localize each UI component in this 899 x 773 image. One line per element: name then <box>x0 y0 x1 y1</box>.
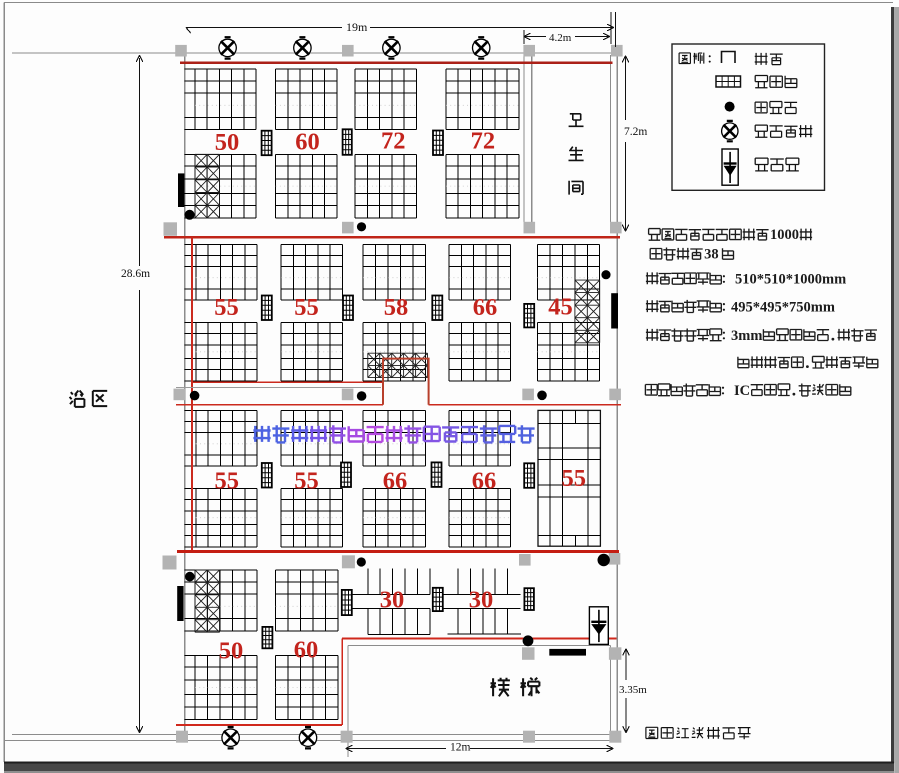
svg-text:30: 30 <box>380 586 405 613</box>
svg-text:58: 58 <box>384 294 409 321</box>
svg-text:4.2m: 4.2m <box>549 32 572 44</box>
svg-text:66: 66 <box>472 467 497 494</box>
svg-text:38: 38 <box>704 247 719 263</box>
svg-text:3mm: 3mm <box>731 328 762 344</box>
svg-text:19m: 19m <box>346 20 368 34</box>
svg-text:55: 55 <box>294 294 319 321</box>
svg-text:66: 66 <box>473 294 498 321</box>
svg-text:55: 55 <box>562 465 587 492</box>
svg-text:60: 60 <box>294 636 319 663</box>
svg-text:50: 50 <box>215 129 240 156</box>
svg-text:28.6m: 28.6m <box>121 268 150 280</box>
svg-text:45: 45 <box>548 293 573 320</box>
svg-text:IC: IC <box>734 383 750 399</box>
svg-text:72: 72 <box>381 128 406 155</box>
svg-text:55: 55 <box>214 294 239 321</box>
svg-text:72: 72 <box>471 128 496 155</box>
svg-text:30: 30 <box>469 586 494 613</box>
svg-text:7.2m: 7.2m <box>624 126 647 138</box>
svg-text:50: 50 <box>219 637 244 664</box>
svg-text:60: 60 <box>295 129 320 156</box>
svg-text:66: 66 <box>383 467 408 494</box>
svg-text:510*510*1000mm: 510*510*1000mm <box>735 272 846 288</box>
svg-text:55: 55 <box>294 467 319 494</box>
svg-text:12m: 12m <box>450 742 471 754</box>
svg-text:55: 55 <box>214 467 239 494</box>
svg-text:495*495*750mm: 495*495*750mm <box>731 300 835 316</box>
svg-text:3.35m: 3.35m <box>619 684 647 696</box>
svg-text:1000: 1000 <box>770 227 799 243</box>
